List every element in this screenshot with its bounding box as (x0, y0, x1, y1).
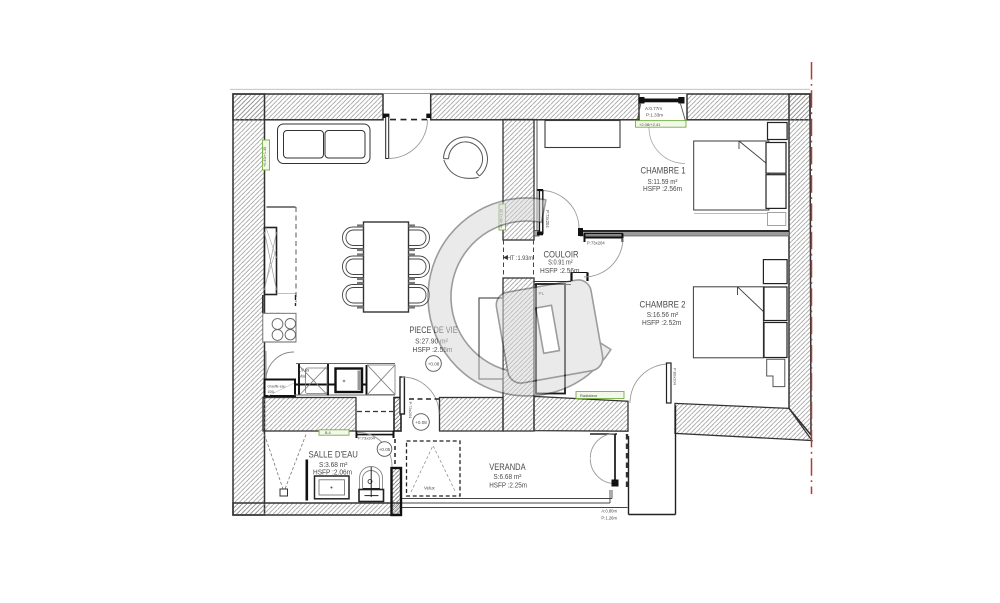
svg-text:+0.45/+1.35: +0.45/+1.35 (263, 147, 267, 167)
svg-text:B-4: B-4 (325, 431, 331, 435)
svg-text:Radiateur: Radiateur (580, 393, 598, 398)
svg-text:P:73x204: P:73x204 (358, 436, 376, 441)
svg-text:S:3.68 m²: S:3.68 m² (319, 462, 348, 469)
svg-text:A:0.77m: A:0.77m (645, 106, 662, 111)
svg-text:P:1.26m: P:1.26m (601, 516, 617, 521)
svg-text:CHAMBRE 1: CHAMBRE 1 (641, 165, 686, 175)
svg-text:S:16.56 m²: S:16.56 m² (647, 312, 679, 319)
svg-text:+0.08: +0.08 (415, 420, 427, 425)
svg-text:S:11.59 m²: S:11.59 m² (648, 179, 679, 186)
svg-text:HT :1.93m: HT :1.93m (507, 255, 533, 262)
svg-text:+0.05: +0.05 (379, 447, 391, 452)
svg-text:P:73x204: P:73x204 (545, 210, 550, 228)
svg-text:P:1.33m: P:1.33m (646, 113, 663, 118)
svg-text:P:73x204: P:73x204 (587, 241, 605, 246)
svg-text:chauffe-eau: chauffe-eau (268, 385, 286, 389)
svg-text:100L: 100L (268, 390, 276, 394)
svg-text:+2.08/+2.41: +2.08/+2.41 (639, 122, 661, 127)
svg-text:VERANDA: VERANDA (489, 462, 526, 472)
svg-text:HSFP :2.52m: HSFP :2.52m (642, 320, 682, 327)
svg-text:P:80x204: P:80x204 (673, 368, 678, 386)
svg-text:LV ss: LV ss (299, 368, 309, 373)
svg-text:HSFP :2.25m: HSFP :2.25m (489, 482, 527, 489)
svg-text:S:0.91 m²: S:0.91 m² (548, 260, 573, 267)
svg-text:CHAMBRE 2: CHAMBRE 2 (640, 299, 686, 309)
svg-text:COULOIR: COULOIR (544, 249, 579, 259)
svg-text:HSFP :2.56m: HSFP :2.56m (643, 186, 682, 193)
svg-text:Mal: Mal (299, 374, 306, 379)
svg-text:SALLE D'EAU: SALLE D'EAU (308, 449, 358, 459)
svg-text:+0.08: +0.08 (428, 362, 440, 367)
svg-text:HSFP :2.56m: HSFP :2.56m (540, 268, 580, 275)
svg-text:A:0.80m: A:0.80m (601, 509, 617, 514)
svg-text:S:6.68 m²: S:6.68 m² (493, 474, 522, 481)
svg-text:Velux: Velux (424, 486, 436, 491)
svg-text:HSFP :2.06m: HSFP :2.06m (313, 470, 352, 477)
svg-text:P:75x204: P:75x204 (408, 402, 413, 420)
